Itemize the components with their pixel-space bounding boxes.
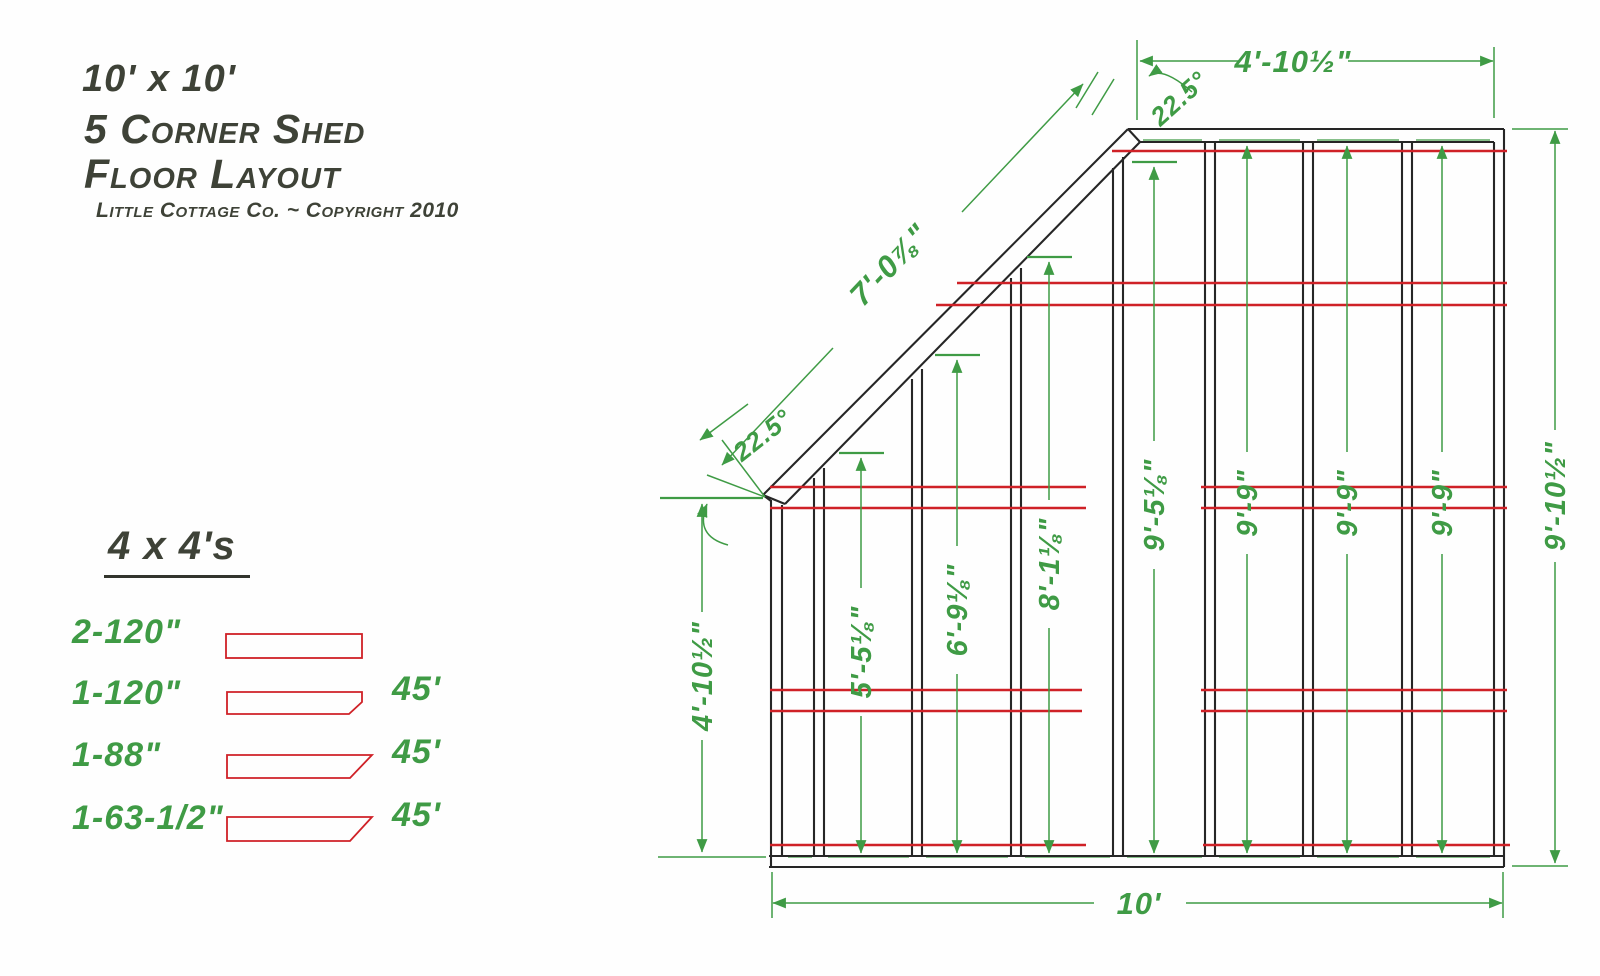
dim-label-joist: 6'-9⅛" — [942, 563, 974, 656]
frame-diagonal-outer — [763, 129, 1128, 495]
dim-label-top-angle: 22.5° — [1144, 65, 1214, 132]
dim-label-top-width: 4'-10½" — [1234, 44, 1352, 79]
drawing-sheet: 10' x 10' 5 Corner Shed Floor Layout Lit… — [0, 0, 1600, 976]
joist-dim-1: 5'-5⅛" — [839, 453, 884, 853]
dim-label-joist: 9'-9" — [1232, 469, 1264, 537]
dim-label-joist: 8'-1⅛" — [1034, 517, 1066, 610]
angle-leader-arc — [703, 504, 728, 545]
dim-label-joist: 9'-9" — [1332, 469, 1364, 537]
frame-diagonal-bottom-cap — [763, 495, 785, 504]
joist-dim-5: 9'-9" — [1232, 146, 1264, 853]
dim-label-left-height: 4'-10½" — [687, 621, 719, 732]
joist-dim-6: 9'-9" — [1332, 146, 1364, 853]
legend-lumber-profiles — [226, 634, 372, 841]
dim-label-right-height: 9'-10½" — [1540, 441, 1572, 551]
dimension-annotations: 4'-10½" 22.5° 7'-0⅞" 22.5° 4'-10½" — [658, 40, 1572, 921]
lumber-profile-one-bevel — [227, 692, 362, 714]
joist-dim-4: 9'-5⅛" — [1132, 162, 1177, 853]
dim-label-joist: 9'-5⅛" — [1139, 458, 1171, 551]
lumber-profile-square-cut — [226, 634, 362, 658]
floor-plan-drawing: 4'-10½" 22.5° 7'-0⅞" 22.5° 4'-10½" — [0, 0, 1600, 976]
angle-jaw-line — [1076, 72, 1098, 108]
floor-frame — [763, 129, 1504, 867]
dim-label-joist: 5'-5⅛" — [846, 605, 878, 698]
frame-diagonal-top-cap — [1128, 129, 1140, 142]
dim-label-joist: 9'-9" — [1427, 469, 1459, 537]
joist-dim-7: 9'-9" — [1427, 146, 1459, 853]
joist-dim-2: 6'-9⅛" — [935, 355, 980, 853]
lumber-profile-full-bevel — [227, 755, 372, 778]
frame-diagonal-inner — [785, 142, 1140, 504]
lumber-profile-full-bevel — [227, 817, 372, 841]
dim-label-bottom-width: 10' — [1117, 886, 1162, 921]
joist-dim-3: 8'-1⅛" — [1027, 257, 1072, 853]
angle-jaw-line — [1092, 79, 1114, 115]
dim-label-diagonal: 7'-0⅞" — [843, 217, 937, 313]
